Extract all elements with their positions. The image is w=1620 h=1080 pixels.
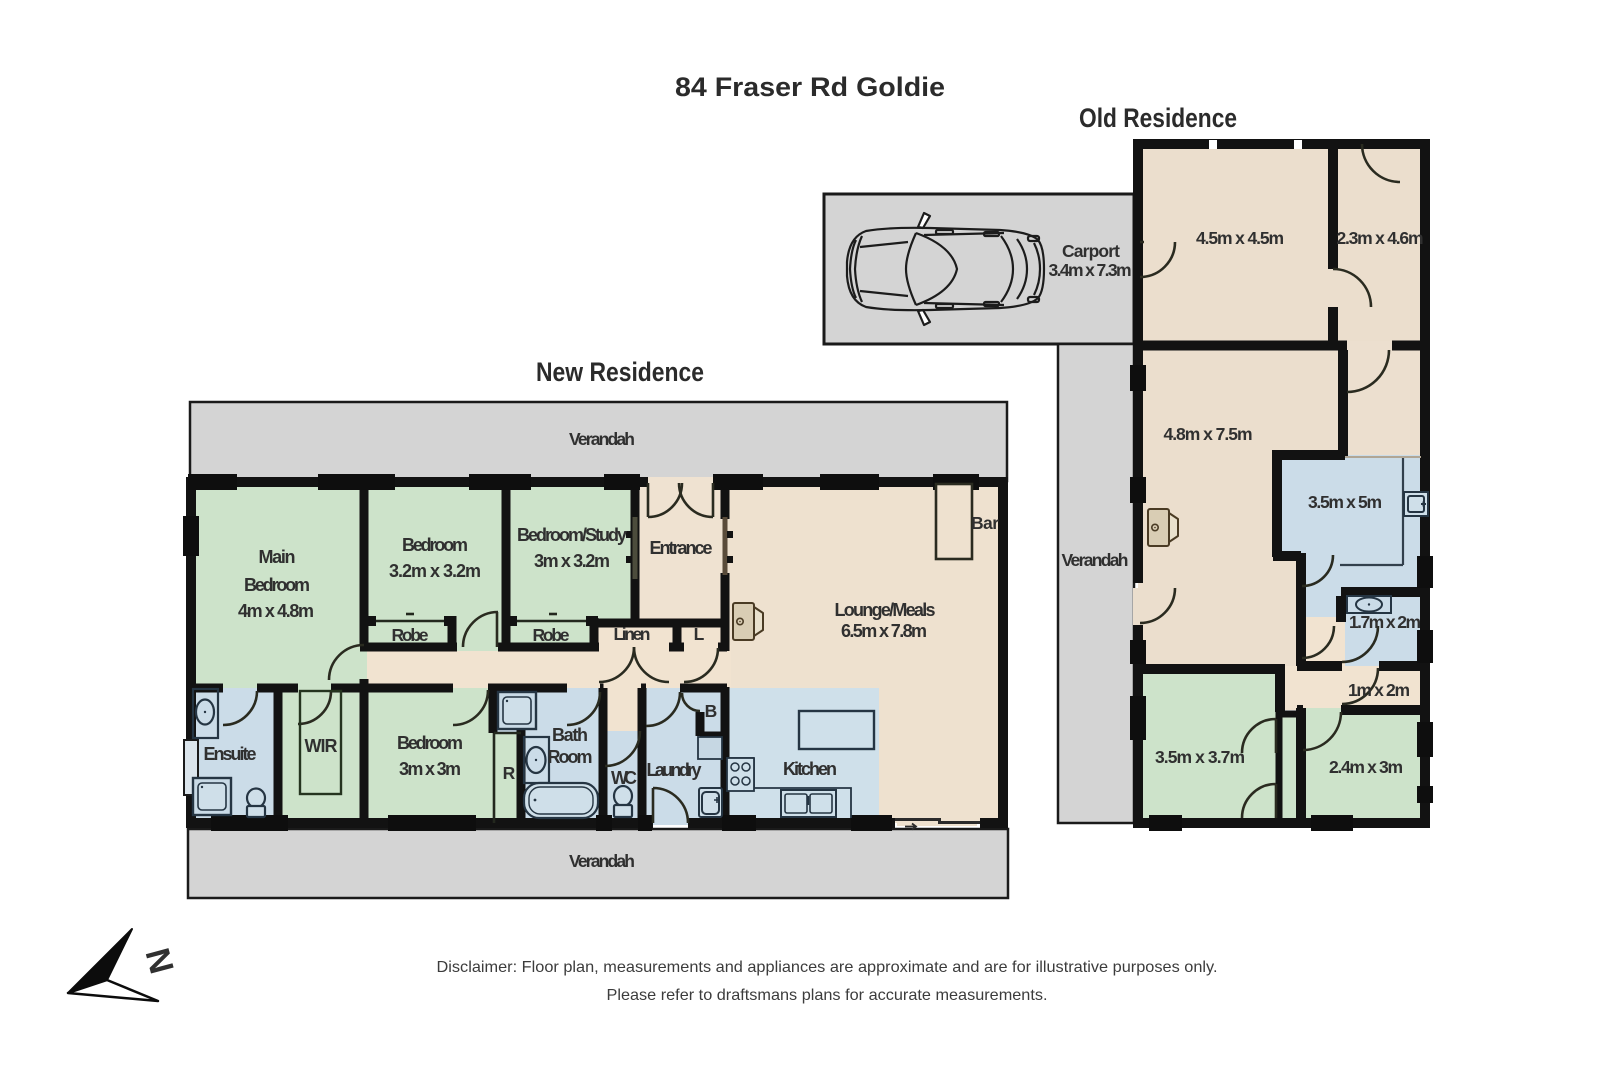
svg-text:Bedroom: Bedroom bbox=[402, 535, 468, 555]
svg-text:1m x 2m: 1m x 2m bbox=[1348, 680, 1410, 700]
svg-text:Lounge/Meals: Lounge/Meals bbox=[835, 600, 936, 620]
svg-text:B: B bbox=[705, 701, 718, 721]
svg-text:R: R bbox=[503, 763, 516, 783]
svg-text:Carport: Carport bbox=[1062, 241, 1120, 261]
svg-text:1.7m x 2m: 1.7m x 2m bbox=[1349, 612, 1421, 632]
svg-text:2.4m x 3m: 2.4m x 3m bbox=[1329, 757, 1403, 777]
svg-text:Bedroom: Bedroom bbox=[397, 733, 463, 753]
svg-text:4.8m x 7.5m: 4.8m x 7.5m bbox=[1164, 424, 1253, 444]
svg-text:Bedroom: Bedroom bbox=[244, 575, 310, 595]
svg-text:Ensuite: Ensuite bbox=[204, 744, 257, 764]
svg-text:L: L bbox=[694, 624, 705, 644]
svg-text:2.3m x 4.6m: 2.3m x 4.6m bbox=[1337, 228, 1424, 248]
svg-text:Old Residence: Old Residence bbox=[1079, 103, 1237, 133]
svg-text:Please refer to draftsmans pla: Please refer to draftsmans plans for acc… bbox=[607, 987, 1048, 1004]
svg-text:Verandah: Verandah bbox=[569, 851, 635, 871]
svg-text:4m x 4.8m: 4m x 4.8m bbox=[238, 601, 314, 621]
svg-text:Linen: Linen bbox=[614, 624, 651, 644]
svg-text:Verandah: Verandah bbox=[1062, 550, 1129, 570]
svg-text:3.4m x 7.3m: 3.4m x 7.3m bbox=[1049, 260, 1132, 280]
svg-text:Disclaimer: Floor plan, measur: Disclaimer: Floor plan, measurements and… bbox=[437, 959, 1218, 976]
svg-text:6.5m x 7.8m: 6.5m x 7.8m bbox=[841, 621, 927, 641]
svg-text:Entrance: Entrance bbox=[650, 538, 713, 558]
svg-text:Bedroom/Study: Bedroom/Study bbox=[517, 525, 627, 545]
svg-text:WC: WC bbox=[611, 768, 637, 788]
svg-text:WIR: WIR bbox=[305, 736, 338, 756]
svg-text:3.5m x 3.7m: 3.5m x 3.7m bbox=[1155, 747, 1245, 767]
svg-text:Bar: Bar bbox=[971, 513, 999, 533]
svg-text:Laundry: Laundry bbox=[647, 760, 702, 780]
svg-text:Robe: Robe bbox=[533, 625, 570, 645]
svg-text:New Residence: New Residence bbox=[536, 357, 704, 387]
svg-text:Verandah: Verandah bbox=[569, 429, 635, 449]
svg-text:Robe: Robe bbox=[392, 625, 429, 645]
svg-text:3.5m x 5m: 3.5m x 5m bbox=[1308, 492, 1382, 512]
svg-text:4.5m x 4.5m: 4.5m x 4.5m bbox=[1196, 228, 1284, 248]
svg-text:Bath: Bath bbox=[552, 725, 588, 745]
svg-text:Main: Main bbox=[259, 547, 296, 567]
svg-text:3m x 3.2m: 3m x 3.2m bbox=[534, 551, 610, 571]
svg-text:3m x 3m: 3m x 3m bbox=[399, 759, 461, 779]
svg-text:Kitchen: Kitchen bbox=[783, 759, 837, 779]
svg-text:3.2m x 3.2m: 3.2m x 3.2m bbox=[389, 561, 481, 581]
svg-text:Room: Room bbox=[548, 747, 593, 767]
svg-text:N: N bbox=[137, 944, 180, 978]
svg-text:84 Fraser Rd Goldie: 84 Fraser Rd Goldie bbox=[675, 72, 945, 102]
